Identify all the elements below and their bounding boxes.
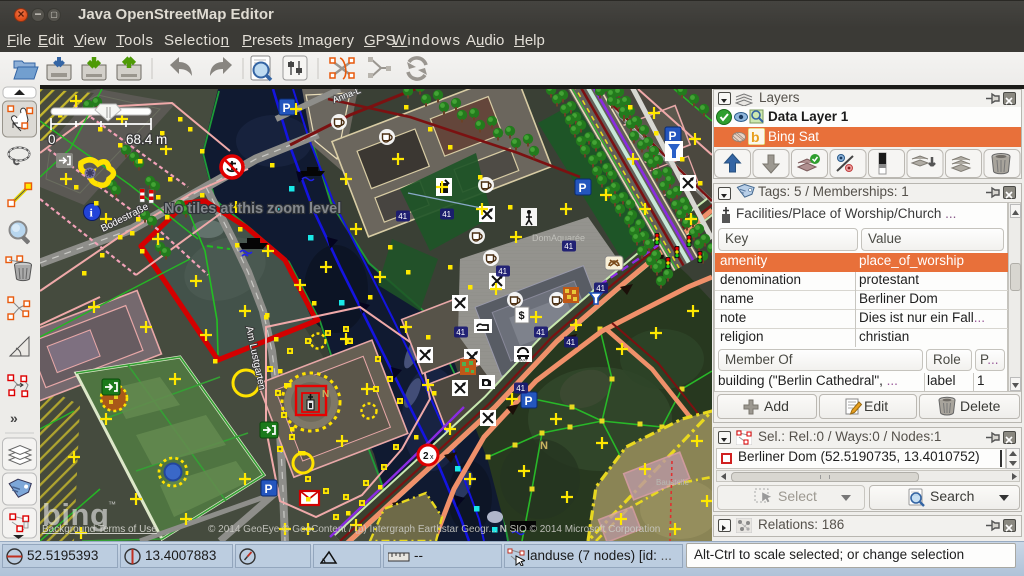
- svg-text:2: 2: [423, 451, 429, 462]
- svg-text:DomAquarée: DomAquarée: [532, 233, 585, 243]
- svg-text:$: $: [519, 310, 525, 322]
- svg-text:Background Terms of Use: Background Terms of Use: [42, 524, 157, 535]
- svg-text:»: »: [10, 410, 18, 426]
- svg-text:68.4 m: 68.4 m: [126, 132, 167, 147]
- svg-text:0: 0: [48, 132, 56, 147]
- svg-text:Baustelle: Baustelle: [656, 478, 689, 487]
- svg-text:No tiles at this zoom level: No tiles at this zoom level: [164, 201, 341, 217]
- svg-text:x: x: [430, 454, 434, 461]
- svg-text:N: N: [322, 389, 329, 400]
- svg-text:b: b: [751, 129, 760, 145]
- svg-text:TAXI: TAXI: [518, 358, 527, 363]
- svg-text:™: ™: [108, 500, 116, 509]
- svg-text:N: N: [540, 440, 548, 452]
- svg-text:© 2014 GeoEye © GeoContent / (: © 2014 GeoEye © GeoContent / (p) Intergr…: [208, 524, 660, 535]
